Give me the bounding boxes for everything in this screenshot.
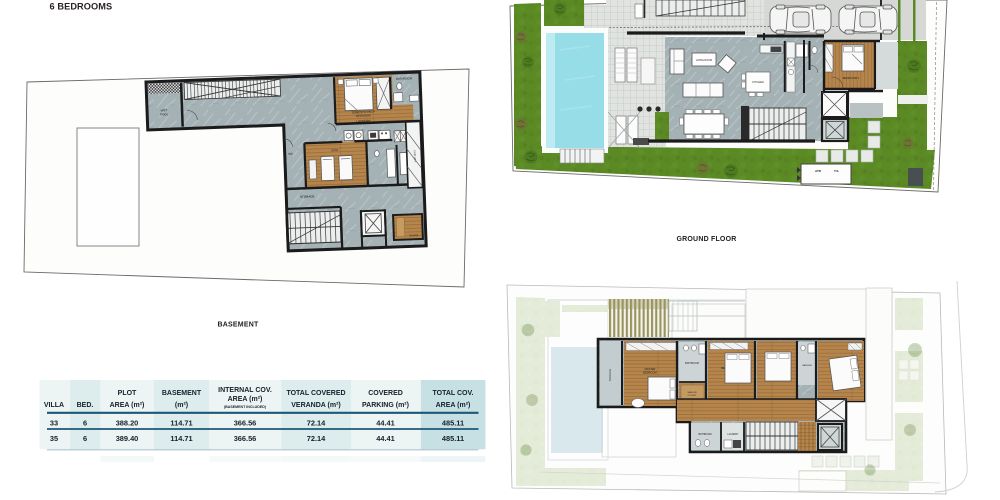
svg-text:44.41: 44.41 <box>376 418 395 427</box>
svg-text:BEDROOM: BEDROOM <box>643 370 656 374</box>
svg-text:BASEMENT: BASEMENT <box>218 322 259 329</box>
svg-text:VILLA: VILLA <box>44 402 64 409</box>
svg-text:485.11: 485.11 <box>442 418 464 427</box>
svg-text:BATHROOM: BATHROOM <box>396 76 413 81</box>
svg-text:6: 6 <box>83 434 87 443</box>
svg-text:GYM: GYM <box>331 148 338 152</box>
svg-text:33: 33 <box>50 418 58 427</box>
svg-text:SAUNA: SAUNA <box>409 233 418 237</box>
svg-text:389.40: 389.40 <box>116 434 139 443</box>
svg-text:366.56: 366.56 <box>234 434 257 443</box>
svg-text:WALK-IN: WALK-IN <box>687 391 696 394</box>
svg-text:BATHROOM: BATHROOM <box>698 433 711 436</box>
svg-text:WC: WC <box>288 152 293 156</box>
svg-text:BASEMENT: BASEMENT <box>162 390 202 397</box>
svg-text:MASTER: MASTER <box>645 367 656 371</box>
svg-text:366.56: 366.56 <box>234 418 257 427</box>
svg-text:72.14: 72.14 <box>307 418 326 427</box>
svg-text:TOTAL COV.: TOTAL COV. <box>433 390 474 397</box>
svg-text:AREA (m²): AREA (m²) <box>228 396 263 403</box>
svg-text:STORAGE: STORAGE <box>300 194 315 199</box>
svg-text:LIVING ROOM: LIVING ROOM <box>696 59 712 62</box>
svg-text:POOL: POOL <box>160 112 169 116</box>
svg-text:35: 35 <box>50 434 58 443</box>
svg-text:BED.: BED. <box>77 402 94 409</box>
svg-text:AREA (m²): AREA (m²) <box>436 402 471 409</box>
svg-text:CLOSET: CLOSET <box>688 395 697 397</box>
svg-text:PLOT: PLOT <box>118 390 137 397</box>
svg-text:BATHROOM: BATHROOM <box>685 362 699 365</box>
svg-text:AREA (m²): AREA (m²) <box>110 402 145 409</box>
svg-text:PARKING (m²): PARKING (m²) <box>362 402 409 409</box>
svg-text:LAUNDRY: LAUNDRY <box>728 433 739 436</box>
svg-text:TERRACE: TERRACE <box>608 369 612 382</box>
svg-text:114.71: 114.71 <box>170 418 192 427</box>
svg-text:LAUNDRY: LAUNDRY <box>356 119 370 124</box>
svg-text:(BASEMENT INCLUDED): (BASEMENT INCLUDED) <box>224 405 267 409</box>
svg-text:TOTAL COVERED: TOTAL COVERED <box>286 390 345 397</box>
svg-text:44.41: 44.41 <box>376 434 395 443</box>
svg-text:BEDROOM 1: BEDROOM 1 <box>843 76 860 80</box>
svg-text:GROUND FLOOR: GROUND FLOOR <box>677 236 737 243</box>
svg-text:BATHRM: BATHRM <box>802 364 811 367</box>
svg-text:6: 6 <box>83 418 87 427</box>
svg-text:72.14: 72.14 <box>307 434 326 443</box>
svg-text:(m²): (m²) <box>175 402 188 409</box>
svg-text:ATR: ATR <box>815 169 822 173</box>
svg-text:VERANDA (m²): VERANDA (m²) <box>291 402 341 409</box>
svg-text:T.S.: T.S. <box>834 169 839 173</box>
svg-text:KITCHEN: KITCHEN <box>752 80 764 84</box>
svg-text:CAR LIFT: CAR LIFT <box>413 150 417 163</box>
svg-text:114.71: 114.71 <box>170 434 192 443</box>
svg-text:6 BEDROOMS: 6 BEDROOMS <box>50 2 113 12</box>
svg-text:BEDROOM: BEDROOM <box>356 113 371 118</box>
svg-text:388.20: 388.20 <box>116 418 139 427</box>
svg-text:INTERNAL COV.: INTERNAL COV. <box>218 387 272 394</box>
svg-text:485.11: 485.11 <box>442 434 464 443</box>
svg-text:COVERED: COVERED <box>368 390 403 397</box>
